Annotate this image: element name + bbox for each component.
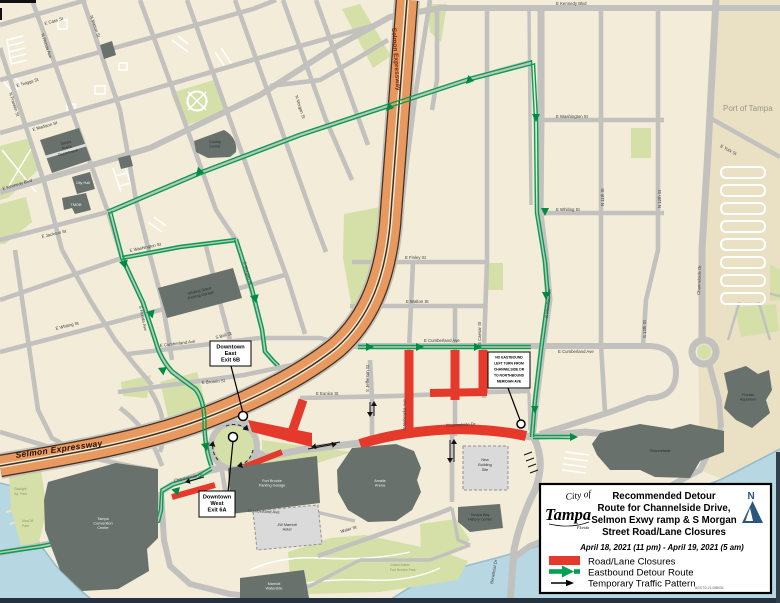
svg-text:S Nebraska Ave: S Nebraska Ave: [402, 399, 407, 430]
svg-text:MarriottWaterside: MarriottWaterside: [266, 582, 283, 591]
svg-text:FloridaAquarium: FloridaAquarium: [740, 393, 756, 402]
svg-text:Tampa BayHistory Center: Tampa BayHistory Center: [468, 513, 493, 522]
svg-text:E Cumberland Ave: E Cumberland Ave: [558, 349, 594, 354]
svg-text:N 11th St: N 11th St: [600, 188, 605, 206]
svg-text:Fort Brooke Park: Fort Brooke Park: [390, 568, 416, 572]
svg-text:MacDill: MacDill: [22, 519, 33, 523]
svg-text:Street Road/Lane Closures: Street Road/Lane Closures: [602, 527, 726, 538]
svg-text:E Washington St: E Washington St: [556, 114, 589, 119]
svg-text:N 12th St: N 12th St: [657, 189, 662, 208]
svg-text:Fort BrookeParking Garage: Fort BrookeParking Garage: [259, 479, 286, 488]
svg-text:Channelside: Channelside: [649, 449, 670, 453]
svg-text:AmalieArena: AmalieArena: [374, 479, 386, 488]
svg-text:Temporary Traffic Pattern: Temporary Traffic Pattern: [588, 579, 696, 590]
svg-text:Cotanchobee: Cotanchobee: [390, 563, 410, 567]
svg-text:E Eunice St: E Eunice St: [316, 391, 339, 396]
svg-text:April 18, 2021 (11 pm) - April: April 18, 2021 (11 pm) - April 19, 2021 …: [579, 543, 744, 552]
svg-text:E Cumberland Ave: E Cumberland Ave: [424, 338, 460, 343]
svg-text:S Caesar St: S Caesar St: [477, 321, 482, 345]
svg-text:Selmon Exwy ramp & S Morgan: Selmon Exwy ramp & S Morgan: [591, 515, 736, 526]
svg-text:CountyCenter: CountyCenter: [209, 140, 221, 149]
svg-text:Road/Lane Closures: Road/Lane Closures: [588, 557, 676, 568]
svg-text:Sq. Park: Sq. Park: [14, 492, 27, 496]
svg-text:E Finley St: E Finley St: [405, 255, 427, 260]
svg-text:Eastbound Detour Route: Eastbound Detour Route: [588, 568, 694, 579]
svg-text:AGS TD-21-05B034: AGS TD-21-05B034: [695, 586, 724, 590]
svg-text:Route for Channelside Drive,: Route for Channelside Drive,: [598, 503, 731, 514]
svg-text:Port of Tampa: Port of Tampa: [723, 104, 773, 113]
svg-text:E Whiting St: E Whiting St: [556, 207, 580, 212]
svg-text:City Hall: City Hall: [76, 181, 90, 185]
svg-text:E Kennedy Blvd: E Kennedy Blvd: [556, 1, 587, 6]
svg-text:TMOB: TMOB: [71, 203, 82, 207]
svg-text:Tampa: Tampa: [545, 505, 591, 524]
svg-text:Recommended Detour: Recommended Detour: [612, 491, 716, 502]
svg-text:Park: Park: [22, 524, 29, 528]
svg-text:S Jefferson St: S Jefferson St: [365, 364, 370, 392]
svg-text:E Walton St: E Walton St: [406, 299, 429, 304]
svg-text:Gaslight: Gaslight: [14, 487, 26, 491]
svg-text:S 12th St: S 12th St: [642, 320, 647, 338]
svg-text:N: N: [748, 491, 755, 502]
svg-text:Florida: Florida: [576, 525, 589, 530]
svg-text:Channelside Dr: Channelside Dr: [696, 265, 702, 295]
